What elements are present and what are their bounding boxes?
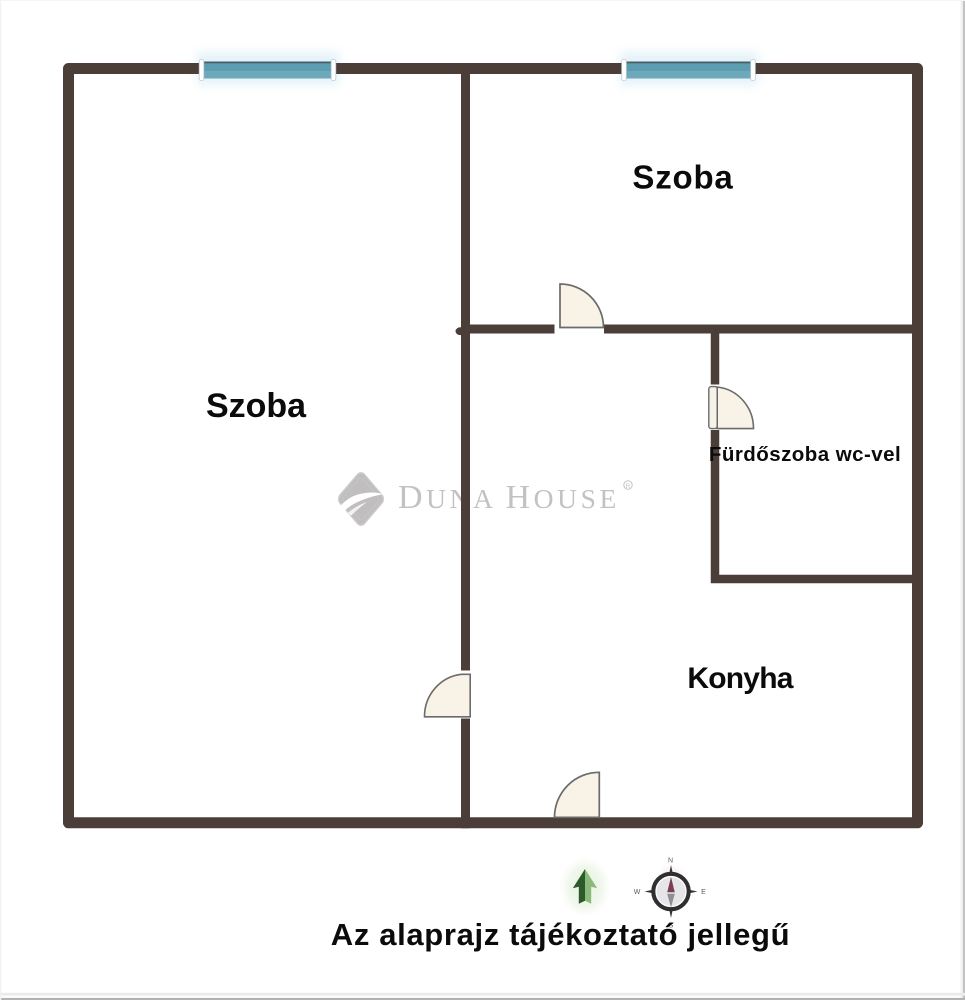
- svg-text:Konyha: Konyha: [687, 662, 793, 695]
- svg-text:E: E: [701, 889, 706, 896]
- svg-text:DUNA HOUSE: DUNA HOUSE: [398, 479, 620, 516]
- svg-text:W: W: [634, 889, 641, 896]
- svg-text:R: R: [626, 483, 631, 490]
- svg-text:Az alaprajz tájékoztató jelleg: Az alaprajz tájékoztató jellegű: [331, 917, 790, 952]
- svg-text:Szoba: Szoba: [632, 159, 733, 196]
- svg-text:N: N: [668, 858, 673, 865]
- svg-text:Fürdőszoba wc-vel: Fürdőszoba wc-vel: [709, 443, 901, 466]
- svg-text:Szoba: Szoba: [206, 387, 307, 425]
